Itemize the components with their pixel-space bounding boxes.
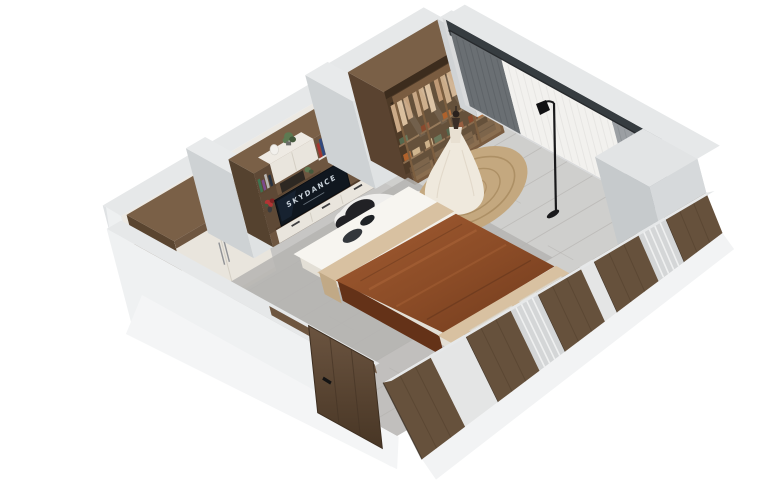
flower-bloom xyxy=(269,203,273,207)
flower-bloom xyxy=(270,199,275,204)
render-viewport: SKYDANCE xyxy=(0,0,780,490)
decor-greenery xyxy=(309,170,314,174)
dress-bodice xyxy=(449,127,462,143)
flower-vase xyxy=(268,206,272,212)
bedroom-isometric-render: SKYDANCE xyxy=(0,0,780,490)
mannequin-head xyxy=(453,111,460,118)
plant-pot xyxy=(286,141,291,145)
flower-leaf xyxy=(265,204,269,207)
